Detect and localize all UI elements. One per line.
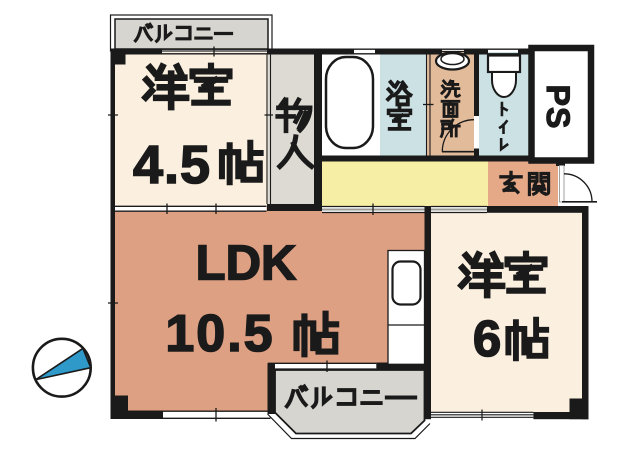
svg-text:10.5: 10.5 (165, 305, 274, 363)
svg-text:LDK: LDK (196, 237, 297, 291)
svg-text:4.5: 4.5 (133, 135, 211, 195)
svg-text:PS: PS (540, 85, 576, 130)
svg-text:6: 6 (473, 310, 501, 367)
